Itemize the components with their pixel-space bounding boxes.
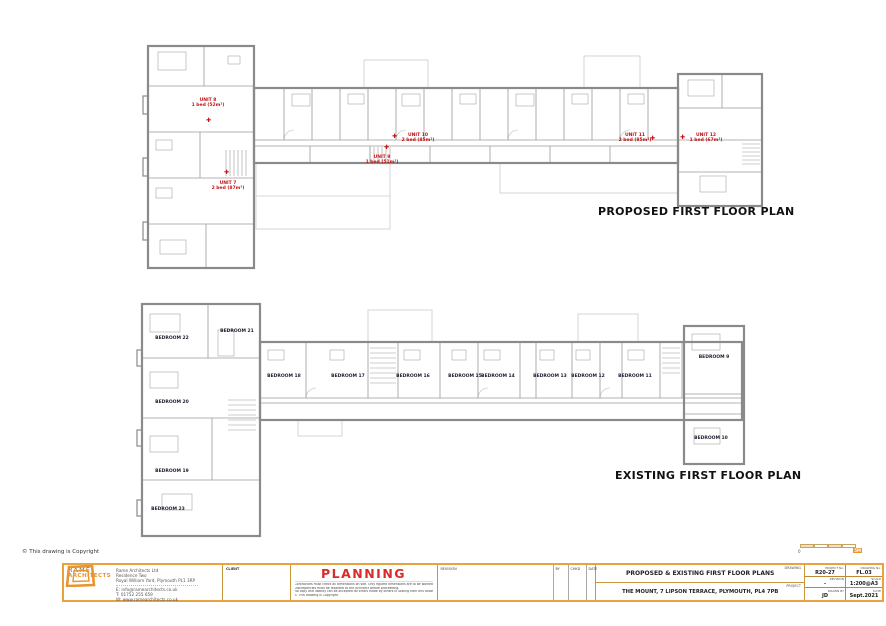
drawing-no-value: FL.03 [847, 570, 881, 576]
room-label: BEDROOM 19 [155, 469, 189, 474]
floor-plan-linework [0, 0, 886, 626]
status-note: © This drawing is Copyright [295, 594, 433, 598]
room-label: BEDROOM 11 [618, 374, 652, 379]
firm-address: Rame Architects Ltd Residence Two Royal … [116, 567, 198, 598]
drawing-no-box: DRAWING No. FL.03 [846, 565, 882, 577]
title-block: RAME ARCHITECTS Rame Architects Ltd Resi… [62, 563, 884, 602]
firm-address2: Royal William Yard, Plymouth PL1 3RP [116, 578, 198, 583]
room-label: BEDROOM 14 [481, 374, 515, 379]
entry-marker-icon: ✚ [384, 145, 389, 151]
client-label: CLIENT [226, 567, 287, 571]
room-label: BEDROOM 17 [331, 374, 365, 379]
revision-column-divider [553, 565, 554, 600]
scale-box: SCALE 1:200@A3 [846, 577, 882, 589]
room-label: BEDROOM 23 [151, 507, 185, 512]
firm-cell: RAME ARCHITECTS Rame Architects Ltd Resi… [64, 565, 223, 600]
unit-label: UNIT 102 bed (85m²) [400, 133, 436, 143]
room-label: BEDROOM 21 [220, 329, 254, 334]
status-cell: PLANNING Contractors must check all dime… [291, 565, 438, 600]
drawing-label: DRAWING [785, 566, 801, 570]
firm-logo: RAME ARCHITECTS [66, 567, 110, 598]
project-title: THE MOUNT, 7 LIPSON TERRACE, PLYMOUTH, P… [622, 589, 778, 595]
room-label: BEDROOM 18 [267, 374, 301, 379]
entry-marker-icon: ✚ [224, 170, 229, 176]
revision-box: REVISION - [805, 577, 846, 589]
drawing-project-cell: DRAWING PROPOSED & EXISTING FIRST FLOOR … [596, 565, 805, 600]
room-label: BEDROOM 9 [697, 355, 731, 360]
rame-architects-logo-icon [64, 565, 98, 587]
room-label: BEDROOM 15 [448, 374, 482, 379]
entry-marker-icon: ✚ [206, 118, 211, 124]
room-label: BEDROOM 16 [396, 374, 430, 379]
meta-cell: PROJECT No. R20-27 DRAWING No. FL.03 REV… [805, 565, 882, 600]
scale-bar-segment [814, 544, 828, 548]
revision-cell: REVISION BY CHKD DATE [438, 565, 597, 600]
project-no-box: PROJECT No. R20-27 [805, 565, 846, 577]
proposed-plan-title: PROPOSED FIRST FLOOR PLAN [598, 205, 794, 218]
status-notes: Contractors must check all dimensions on… [295, 581, 433, 598]
revision-value: - [806, 581, 844, 587]
project-no-value: R20-27 [806, 570, 844, 576]
drawing-sheet: PROPOSED FIRST FLOOR PLAN EXISTING FIRST… [0, 0, 886, 626]
drawn-by-box: DRAWN BY JD [805, 588, 846, 600]
address-divider [116, 585, 198, 586]
project-row: PROJECT THE MOUNT, 7 LIPSON TERRACE, PLY… [596, 583, 804, 600]
entry-marker-icon: ✚ [650, 136, 655, 142]
unit-label: UNIT 81 bed (52m²) [190, 98, 226, 108]
room-label: BEDROOM 20 [155, 400, 189, 405]
unit-label: UNIT 121 bed (67m²) [688, 133, 724, 143]
unit-label: UNIT 72 bed (87m²) [210, 181, 246, 191]
existing-plan-title: EXISTING FIRST FLOOR PLAN [615, 469, 801, 482]
scale-bar-zero-label: 0 [798, 549, 801, 554]
drawing-title: PROPOSED & EXISTING FIRST FLOOR PLANS [626, 570, 774, 577]
copyright-note: © This drawing is Copyright [22, 549, 99, 555]
scale-bar: 0 5M [798, 544, 862, 556]
entry-marker-icon: ✚ [680, 135, 685, 141]
status-title: PLANNING [291, 567, 437, 580]
date-value: Sept.2021 [847, 593, 881, 599]
room-label: BEDROOM 13 [533, 374, 567, 379]
room-label: BEDROOM 10 [694, 436, 728, 441]
scale-bar-segment [800, 544, 814, 548]
by-header: BY [556, 567, 560, 571]
unit-label: UNIT 112 bed (85m²) [617, 133, 653, 143]
revision-column-divider [586, 565, 587, 600]
unit-label: UNIT 91 bed (51m²) [364, 155, 400, 165]
entry-marker-icon: ✚ [392, 134, 397, 140]
scale-bar-end-label: 5M [853, 548, 862, 553]
room-label: BEDROOM 12 [571, 374, 605, 379]
room-label: BEDROOM 22 [155, 336, 189, 341]
project-label: PROJECT [786, 584, 801, 588]
drawing-row: DRAWING PROPOSED & EXISTING FIRST FLOOR … [596, 565, 804, 583]
client-cell: CLIENT [223, 565, 291, 600]
chkd-header: CHKD [571, 567, 581, 571]
revision-header: REVISION [441, 567, 457, 571]
scale-value: 1:200@A3 [847, 581, 881, 587]
drawn-by-value: JD [806, 593, 844, 599]
revision-column-divider [568, 565, 569, 600]
firm-web: W: www.ramearchitects.co.uk [116, 597, 198, 602]
date-box: DATE Sept.2021 [846, 588, 882, 600]
scale-bar-segment [828, 544, 842, 548]
